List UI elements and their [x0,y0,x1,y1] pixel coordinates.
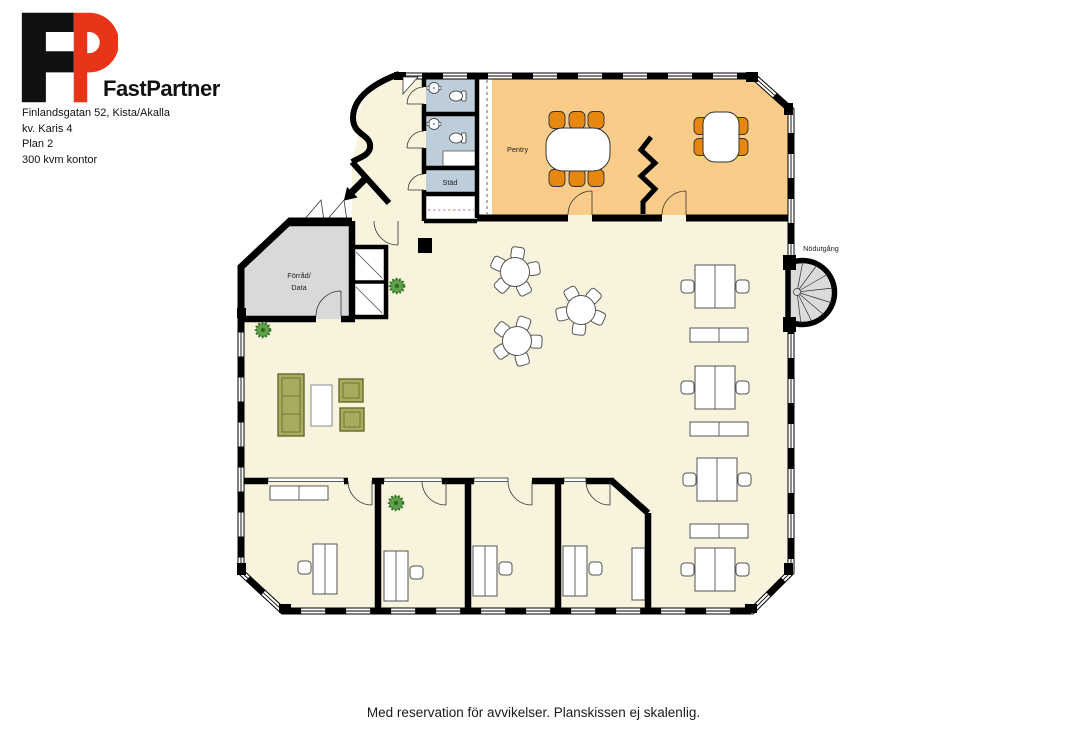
plant-icon [256,323,270,337]
emergency-exit-label: Nödutgång [803,244,839,253]
pentry-label: Pentry [507,145,528,154]
spiral-staircase-icon [783,255,835,332]
plant-icon [389,496,403,510]
toilet-icon [450,91,467,101]
disclaimer-text: Med reservation för avvikelser. Planskis… [0,705,1067,720]
storage-label-line1: Förråd/ [287,271,311,280]
stad-label: Städ [442,178,457,187]
toilet-icon [450,133,467,143]
floor-plan: Pentry Städ Förråd/ Data Nödutgång [0,0,1067,737]
conference-table-group [546,112,610,187]
plant-icon [390,279,404,293]
storage-label-line2: Data [291,283,307,292]
wc-block [426,78,476,219]
wardrobe-icon [352,247,386,317]
